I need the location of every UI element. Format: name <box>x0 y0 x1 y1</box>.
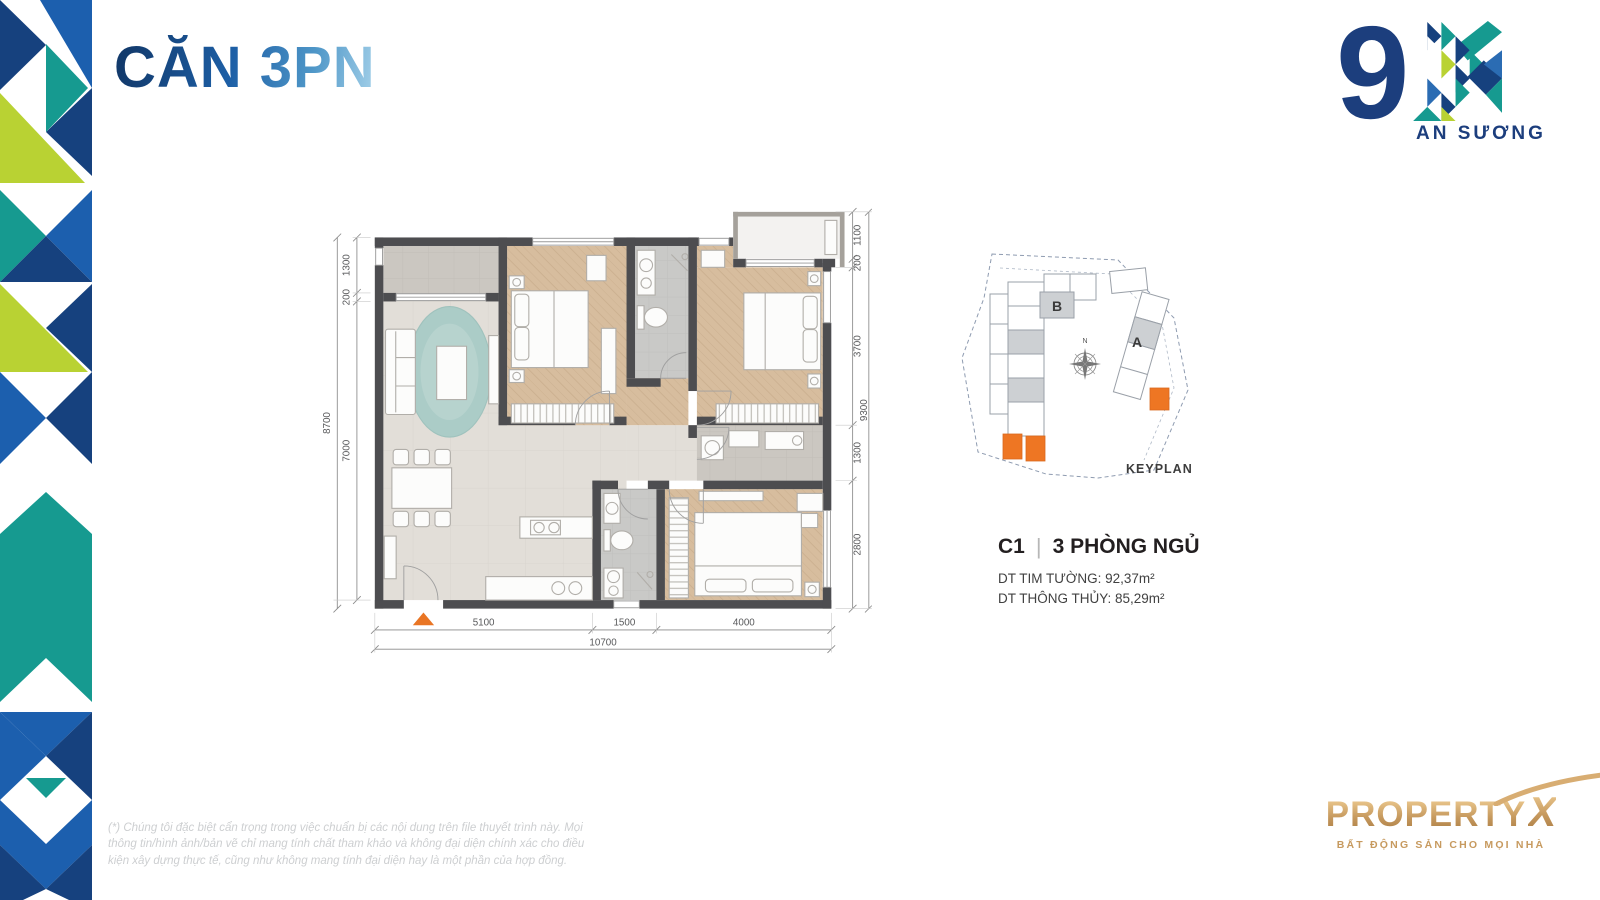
keyplan-title: KEYPLAN <box>1126 462 1193 476</box>
unit-area-gross: DT TIM TƯỜNG: 92,37m² <box>998 569 1200 589</box>
dim-label: 8700 <box>322 412 333 434</box>
shoe-cabinet <box>384 536 396 579</box>
mosaic-strip-decoration <box>0 0 92 900</box>
floor-plan-figure: 1300 200 7000 8700 1100 200 3700 1300 28… <box>300 150 872 679</box>
dim-label: 4000 <box>733 618 755 629</box>
balcony-unit <box>825 220 837 254</box>
logo-nine-digit: 9 <box>1336 12 1405 133</box>
dim-label: 1300 <box>342 254 353 276</box>
sofa <box>385 329 415 414</box>
logo-x-mosaic-icon <box>1397 20 1503 126</box>
block-a-label: A <box>1132 334 1142 350</box>
brand-tagline: BẤT ĐỘNG SẢN CHO MỌI NHÀ <box>1286 839 1596 851</box>
dim-label: 1100 <box>853 224 864 246</box>
unit-type: 3 PHÒNG NGỦ <box>1053 535 1200 559</box>
dresser <box>587 255 606 280</box>
dim-label: 3700 <box>853 335 864 357</box>
page-title: CĂN 3PN <box>114 34 376 101</box>
unit-divider: | <box>1036 534 1042 560</box>
footer-disclaimer: (*) Chúng tôi đặc biệt cẩn trọng trong v… <box>108 820 586 869</box>
tv-console <box>489 336 499 404</box>
entry-marker-icon <box>413 612 434 625</box>
floor-plan: 1300 200 7000 8700 1100 200 3700 1300 28… <box>300 150 872 684</box>
dim-label: 5100 <box>473 618 495 629</box>
logo-subtitle: AN SƯƠNG <box>1416 123 1546 145</box>
brand-logo: PROPERTY X BẤT ĐỘNG SẢN CHO MỌI NHÀ <box>1286 788 1596 851</box>
project-logo: 9 AN SƯƠNG <box>1336 12 1546 145</box>
kitchen-counter <box>486 577 593 600</box>
dim-label: 1300 <box>853 441 864 463</box>
coffee-table <box>437 346 467 399</box>
dining-table <box>392 468 452 509</box>
dim-label: 7000 <box>342 439 353 461</box>
brand-swoosh-icon <box>1492 772 1600 806</box>
north-label: N <box>1082 338 1087 345</box>
keyplan: B A N KEYPLAN <box>948 238 1198 488</box>
dim-label: 200 <box>853 254 864 271</box>
room-balcony-left <box>383 246 498 301</box>
dim-label: 10700 <box>589 637 617 648</box>
block-b <box>990 274 1096 436</box>
desk <box>797 493 823 511</box>
unit-area-net: DT THÔNG THỦY: 85,29m² <box>998 589 1200 609</box>
unit-code: C1 <box>998 535 1025 559</box>
dim-label: 2800 <box>853 533 864 555</box>
unit-info: C1 | 3 PHÒNG NGỦ DT TIM TƯỜNG: 92,37m² D… <box>998 534 1200 608</box>
dim-label: 200 <box>342 288 353 305</box>
block-b-label: B <box>1052 298 1062 314</box>
dim-label: 1500 <box>613 618 635 629</box>
brochure-page: CĂN 3PN 9 AN SƯ <box>0 0 1600 900</box>
dim-label: 9300 <box>859 399 870 421</box>
compass-icon: N <box>1069 338 1101 380</box>
